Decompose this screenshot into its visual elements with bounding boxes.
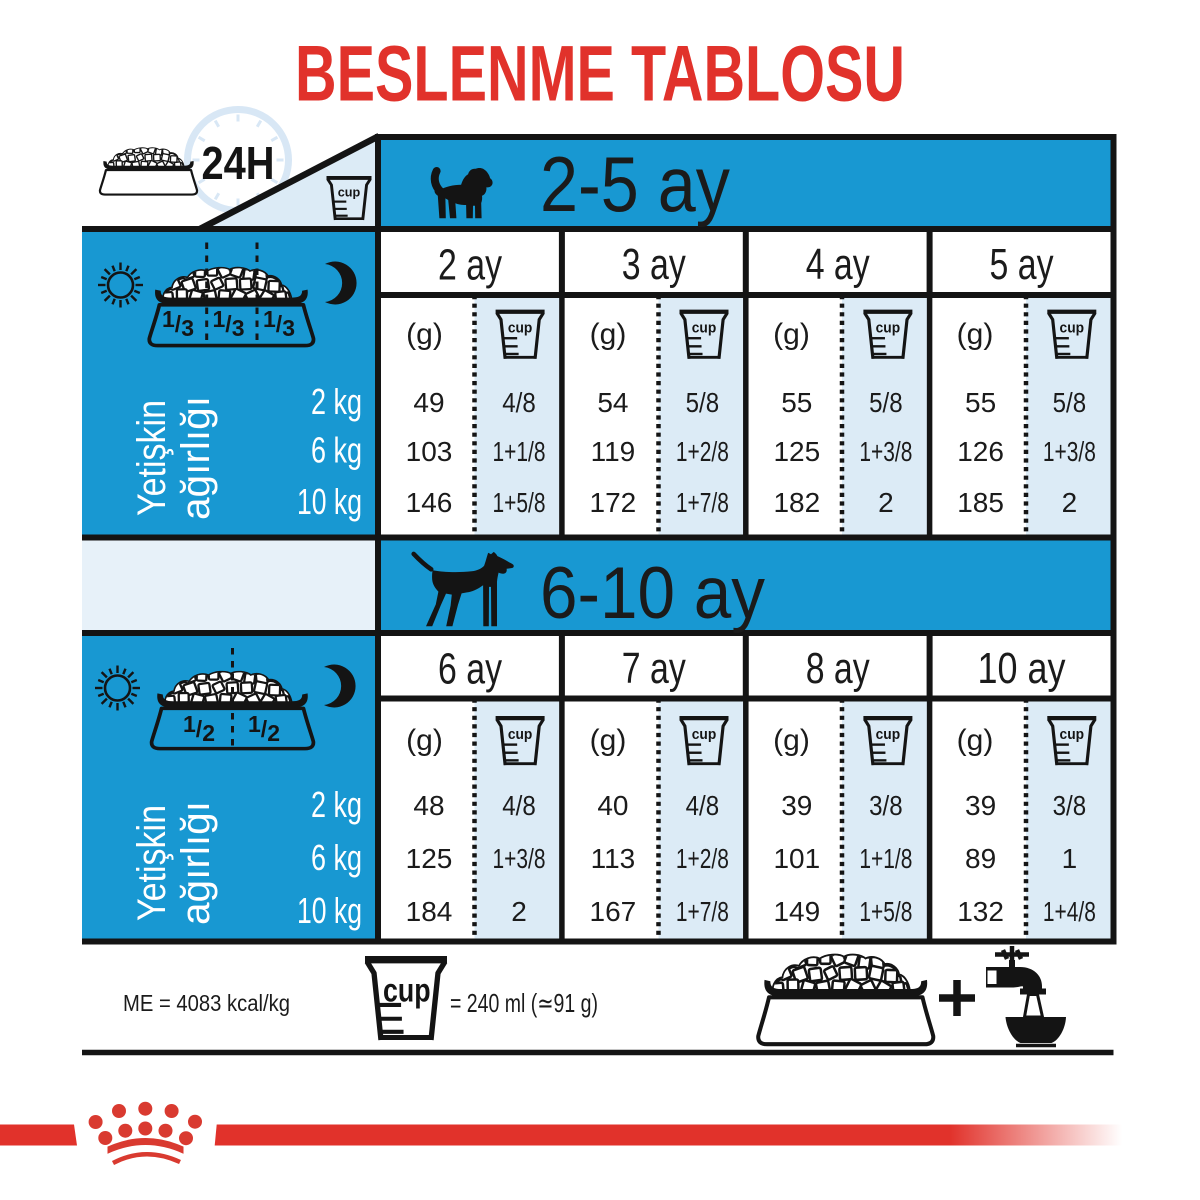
svg-text:1+7/8: 1+7/8	[676, 487, 729, 518]
svg-text:1+4/8: 1+4/8	[1043, 896, 1096, 927]
svg-text:4/8: 4/8	[686, 790, 720, 821]
svg-text:1+5/8: 1+5/8	[493, 487, 546, 518]
svg-text:(g): (g)	[590, 318, 627, 351]
svg-text:55: 55	[965, 387, 996, 418]
svg-text:6-10 ay: 6-10 ay	[540, 553, 765, 634]
svg-text:113: 113	[591, 843, 636, 874]
svg-text:(g): (g)	[773, 318, 810, 351]
svg-text:(g): (g)	[957, 318, 994, 351]
svg-text:1+7/8: 1+7/8	[676, 896, 729, 927]
svg-text:2 ay: 2 ay	[438, 241, 502, 290]
svg-text:1+5/8: 1+5/8	[859, 896, 912, 927]
svg-text:= 240 ml (≃91 g): = 240 ml (≃91 g)	[450, 988, 598, 1018]
svg-text:149: 149	[773, 896, 820, 927]
svg-text:7 ay: 7 ay	[622, 644, 686, 693]
svg-text:8 ay: 8 ay	[806, 644, 870, 693]
svg-text:125: 125	[406, 843, 453, 874]
svg-text:146: 146	[406, 487, 453, 518]
svg-text:5/8: 5/8	[686, 387, 720, 418]
svg-text:5/8: 5/8	[1053, 387, 1087, 418]
svg-text:1+1/8: 1+1/8	[859, 843, 912, 874]
svg-text:39: 39	[781, 790, 812, 821]
svg-text:1+3/8: 1+3/8	[859, 436, 912, 467]
svg-text:ağırlığı: ağırlığı	[174, 396, 218, 520]
svg-text:10 kg: 10 kg	[297, 890, 362, 931]
svg-text:5 ay: 5 ay	[990, 240, 1054, 289]
svg-text:132: 132	[957, 896, 1004, 927]
svg-text:2: 2	[1062, 487, 1078, 518]
svg-text:126: 126	[957, 436, 1004, 467]
svg-text:119: 119	[591, 436, 636, 467]
svg-text:54: 54	[597, 387, 628, 418]
svg-text:184: 184	[406, 896, 453, 927]
svg-text:1+3/8: 1+3/8	[1043, 436, 1096, 467]
svg-text:ME = 4083 kcal/kg: ME = 4083 kcal/kg	[123, 990, 290, 1016]
svg-text:(g): (g)	[406, 724, 443, 757]
svg-text:(g): (g)	[957, 724, 994, 757]
svg-text:103: 103	[406, 436, 453, 467]
svg-text:2: 2	[511, 896, 527, 927]
svg-text:3 ay: 3 ay	[622, 240, 686, 289]
svg-text:10 kg: 10 kg	[297, 481, 362, 522]
svg-text:6 kg: 6 kg	[311, 430, 362, 471]
svg-text:48: 48	[413, 790, 444, 821]
svg-text:Yetişkin: Yetişkin	[130, 805, 174, 921]
svg-text:49: 49	[413, 387, 444, 418]
svg-text:6 kg: 6 kg	[311, 837, 362, 878]
svg-text:2-5 ay: 2-5 ay	[540, 142, 730, 228]
svg-text:1+1/8: 1+1/8	[493, 436, 546, 467]
svg-text:125: 125	[773, 436, 820, 467]
svg-text:Yetişkin: Yetişkin	[130, 400, 174, 516]
svg-text:55: 55	[781, 387, 812, 418]
svg-text:89: 89	[965, 843, 996, 874]
svg-text:(g): (g)	[406, 318, 443, 351]
svg-text:167: 167	[590, 896, 637, 927]
svg-text:24H: 24H	[202, 137, 275, 189]
svg-text:40: 40	[597, 790, 628, 821]
svg-text:BESLENME TABLOSU: BESLENME TABLOSU	[295, 30, 905, 118]
svg-text:(g): (g)	[773, 724, 810, 757]
svg-text:3/8: 3/8	[869, 790, 903, 821]
svg-text:5/8: 5/8	[869, 387, 903, 418]
svg-text:39: 39	[965, 790, 996, 821]
svg-text:1: 1	[1062, 843, 1078, 874]
svg-text:1+2/8: 1+2/8	[676, 436, 729, 467]
svg-text:6 ay: 6 ay	[438, 645, 502, 694]
svg-text:4/8: 4/8	[502, 790, 536, 821]
svg-text:185: 185	[957, 487, 1004, 518]
svg-text:3/8: 3/8	[1053, 790, 1087, 821]
svg-text:1+2/8: 1+2/8	[676, 843, 729, 874]
svg-text:2: 2	[878, 487, 894, 518]
svg-text:2 kg: 2 kg	[311, 381, 362, 422]
svg-text:172: 172	[590, 487, 637, 518]
svg-text:2 kg: 2 kg	[311, 784, 362, 825]
svg-text:4/8: 4/8	[502, 387, 536, 418]
svg-text:1+3/8: 1+3/8	[493, 843, 546, 874]
svg-text:(g): (g)	[590, 724, 627, 757]
svg-text:101: 101	[773, 843, 820, 874]
svg-text:182: 182	[773, 487, 820, 518]
svg-text:10 ay: 10 ay	[978, 644, 1066, 693]
svg-text:4 ay: 4 ay	[806, 240, 870, 289]
svg-text:ağırlığı: ağırlığı	[174, 801, 218, 925]
